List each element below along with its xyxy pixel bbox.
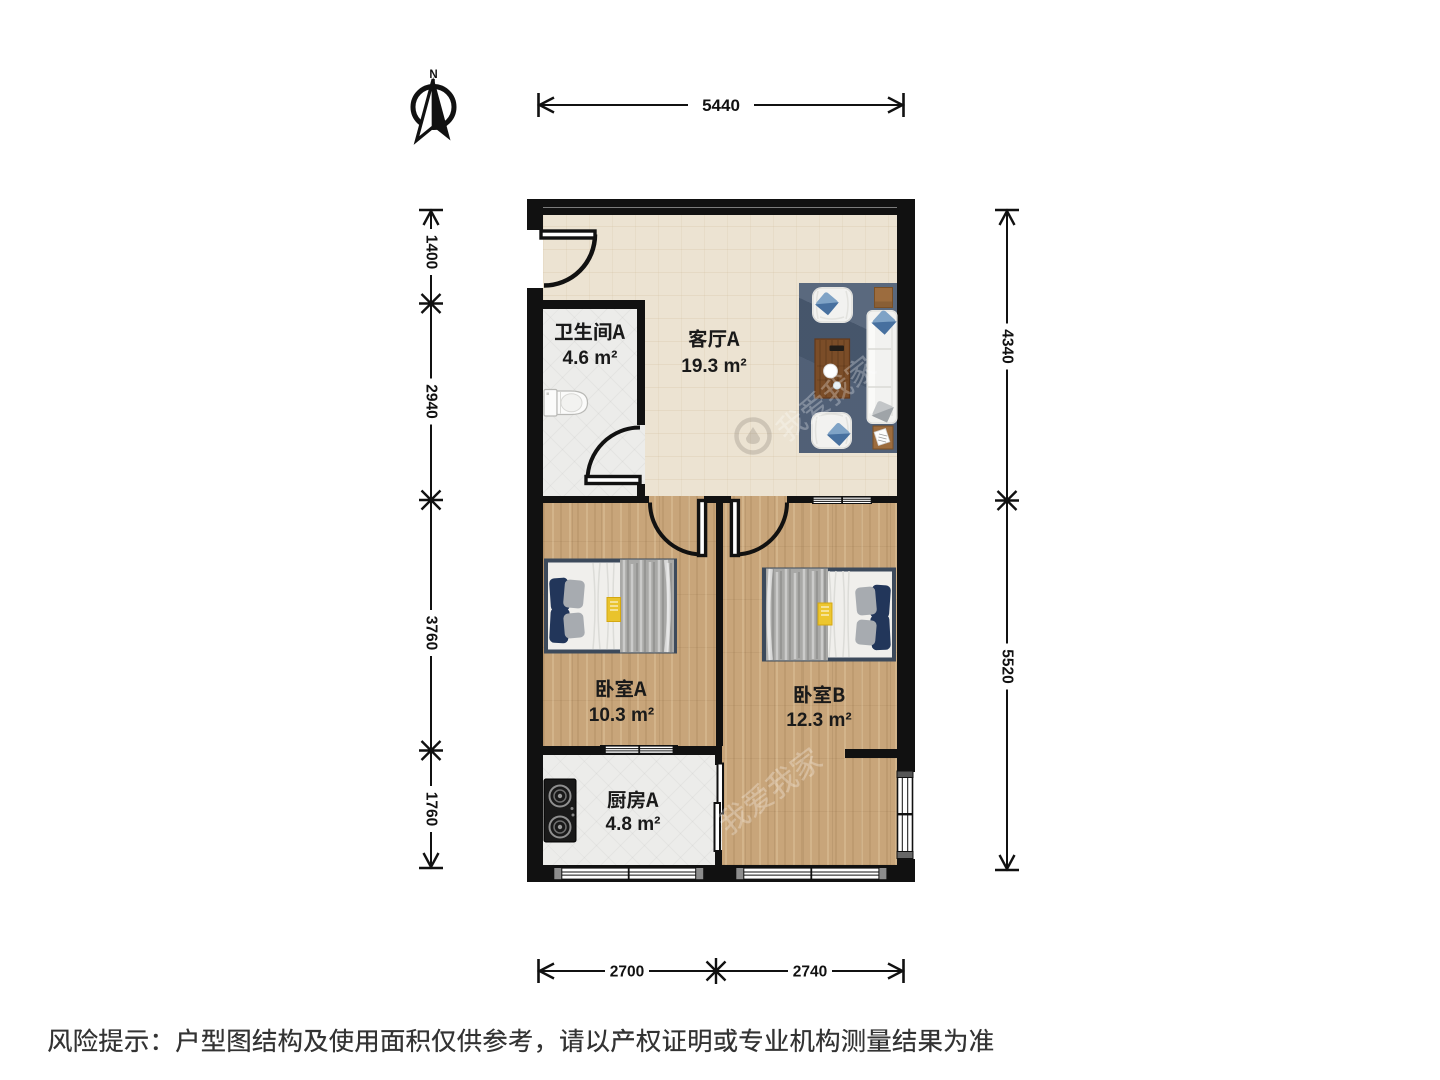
svg-text:2740: 2740 [793,964,827,981]
svg-text:5440: 5440 [702,96,740,115]
svg-text:2700: 2700 [610,964,644,981]
svg-text:1400: 1400 [423,235,440,269]
svg-text:3760: 3760 [423,616,440,650]
svg-text:1760: 1760 [423,792,440,826]
svg-text:4340: 4340 [998,329,1015,363]
svg-text:5520: 5520 [998,649,1015,683]
svg-text:2940: 2940 [423,384,440,418]
